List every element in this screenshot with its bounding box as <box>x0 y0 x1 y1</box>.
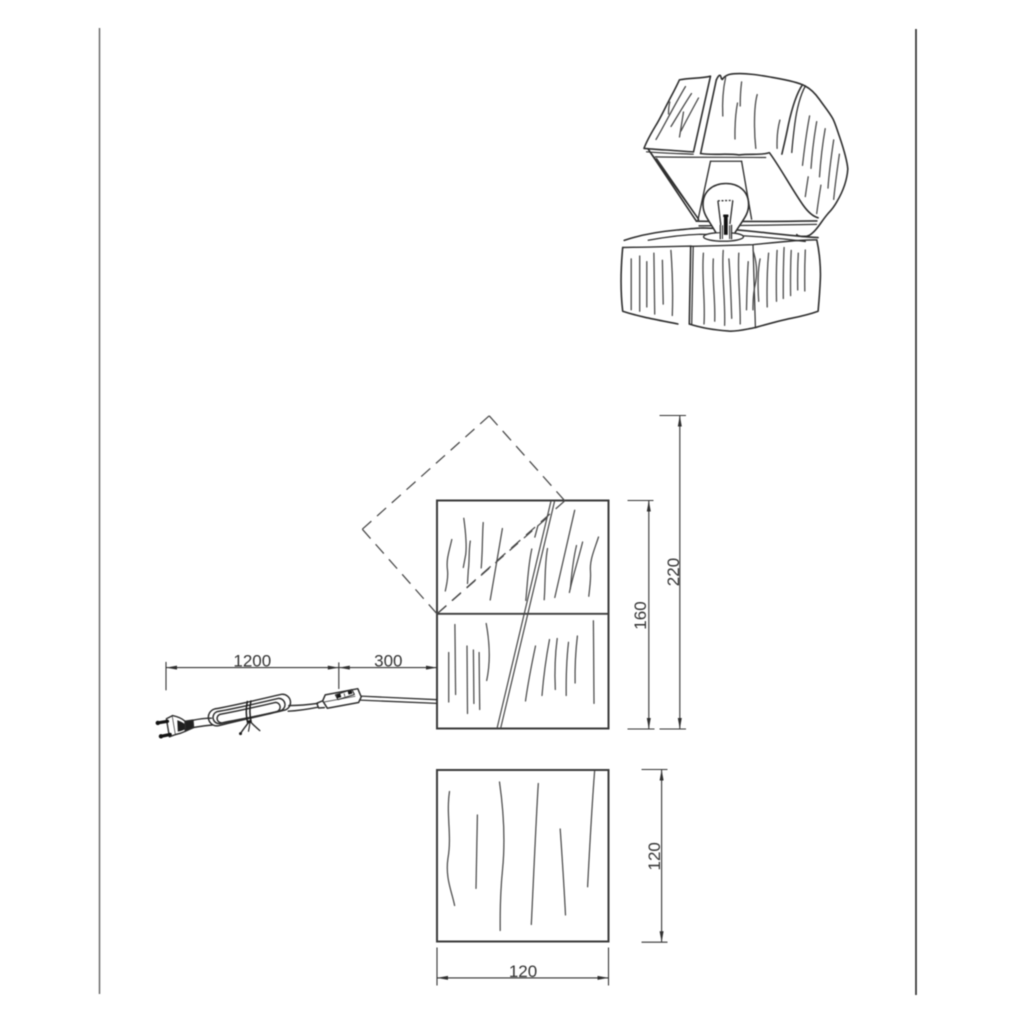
svg-text:120: 120 <box>509 962 537 981</box>
svg-text:160: 160 <box>631 601 650 629</box>
svg-text:300: 300 <box>374 651 402 670</box>
svg-text:220: 220 <box>664 558 683 586</box>
svg-text:1200: 1200 <box>233 651 271 670</box>
svg-text:120: 120 <box>645 842 664 870</box>
